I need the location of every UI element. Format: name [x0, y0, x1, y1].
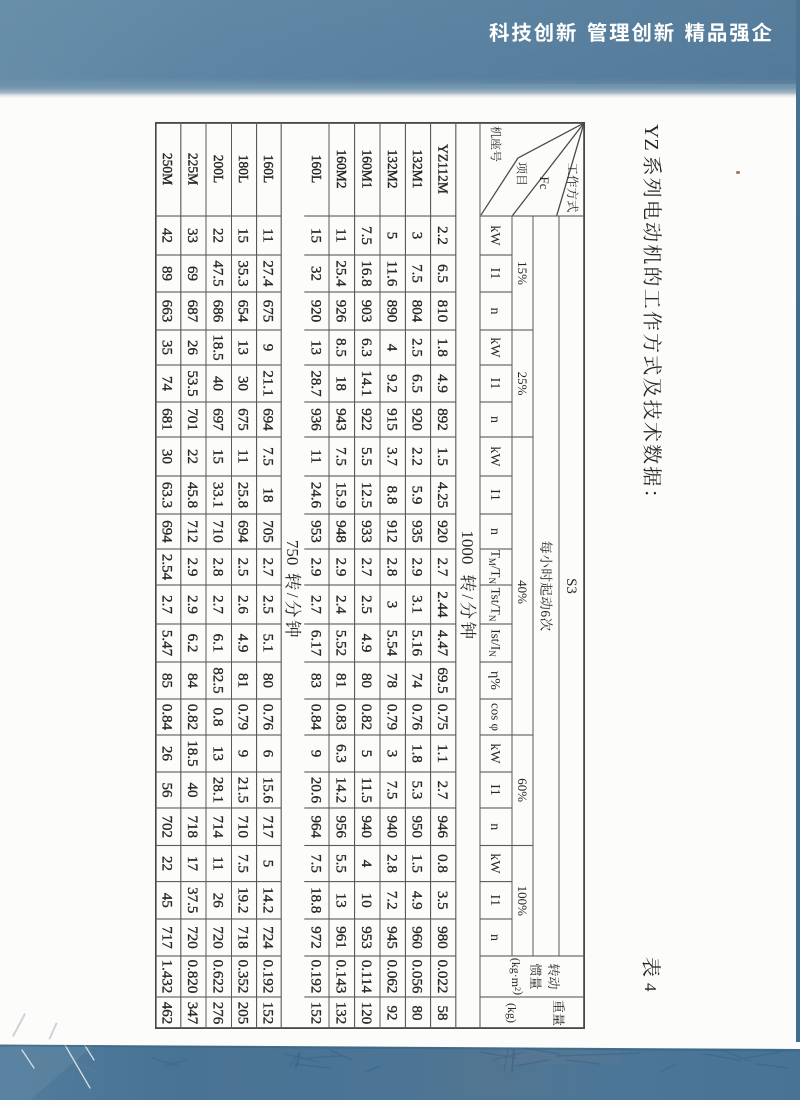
svg-text:0.84: 0.84 [159, 704, 175, 731]
svg-text:200L: 200L [211, 155, 226, 183]
svg-text:663: 663 [159, 300, 175, 322]
svg-text:0.76: 0.76 [409, 704, 425, 731]
svg-text:21.1: 21.1 [260, 370, 276, 396]
svg-text:5.47: 5.47 [159, 630, 175, 657]
svg-text:26: 26 [184, 340, 200, 355]
svg-text:18: 18 [333, 376, 349, 391]
svg-text:710: 710 [235, 816, 251, 838]
svg-text:2.6: 2.6 [235, 595, 251, 614]
svg-text:922: 922 [358, 408, 374, 430]
svg-text:4.47: 4.47 [434, 630, 450, 657]
svg-text:694: 694 [159, 520, 175, 543]
svg-text:15.6: 15.6 [260, 777, 276, 804]
svg-text:960: 960 [409, 926, 425, 948]
svg-text:kW: kW [487, 743, 502, 764]
svg-text:5.54: 5.54 [383, 630, 399, 657]
svg-text:27.4: 27.4 [260, 260, 276, 287]
svg-text:22: 22 [159, 856, 175, 871]
svg-text:152: 152 [307, 1002, 323, 1024]
svg-text:953: 953 [307, 520, 323, 542]
svg-text:30: 30 [235, 376, 251, 391]
svg-text:11: 11 [260, 228, 276, 242]
svg-text:276: 276 [209, 1002, 225, 1025]
svg-text:n: n [487, 308, 502, 315]
svg-text:712: 712 [184, 520, 200, 542]
svg-text:5: 5 [383, 232, 399, 240]
svg-text:675: 675 [235, 408, 251, 430]
svg-text:η%: η% [487, 671, 502, 690]
svg-text:964: 964 [307, 816, 323, 839]
svg-text:2.7: 2.7 [358, 558, 374, 577]
svg-text:n: n [487, 528, 502, 535]
svg-text:718: 718 [184, 816, 200, 838]
svg-text:1.8: 1.8 [434, 338, 450, 357]
svg-text:0.82: 0.82 [184, 704, 200, 730]
svg-text:15%: 15% [515, 261, 530, 285]
svg-text:24.6: 24.6 [307, 482, 323, 509]
svg-text:2.7: 2.7 [209, 595, 225, 614]
svg-text:4.25: 4.25 [434, 482, 450, 508]
svg-text:17: 17 [184, 856, 200, 871]
svg-text:5.16: 5.16 [409, 630, 425, 657]
svg-text:2.5: 2.5 [260, 595, 276, 614]
svg-text:Ist/IN: Ist/IN [487, 629, 503, 657]
svg-text:6.5: 6.5 [434, 264, 450, 283]
svg-text:42: 42 [159, 228, 175, 243]
svg-text:74: 74 [409, 673, 425, 688]
svg-text:(kg·m2): (kg·m2) [509, 958, 526, 995]
svg-text:37.5: 37.5 [184, 887, 200, 913]
svg-text:S3: S3 [563, 578, 579, 594]
svg-text:YZ112M: YZ112M [435, 144, 450, 194]
svg-text:2.5: 2.5 [409, 338, 425, 357]
svg-text:33.1: 33.1 [209, 482, 225, 508]
svg-text:15: 15 [235, 228, 251, 243]
svg-text:I1: I1 [487, 894, 502, 906]
svg-text:720: 720 [209, 926, 225, 948]
svg-text:7.5: 7.5 [333, 447, 349, 466]
svg-text:TM/TN: TM/TN [487, 550, 503, 584]
svg-text:714: 714 [209, 816, 225, 839]
svg-text:58: 58 [434, 1005, 450, 1020]
svg-text:132M2: 132M2 [385, 150, 400, 189]
svg-text:7.5: 7.5 [409, 264, 425, 283]
svg-text:11.5: 11.5 [358, 777, 374, 803]
svg-text:2.44: 2.44 [434, 591, 450, 618]
svg-text:53.5: 53.5 [184, 370, 200, 396]
svg-text:40: 40 [184, 783, 200, 798]
svg-text:18.8: 18.8 [307, 887, 323, 913]
svg-text:7.5: 7.5 [235, 854, 251, 873]
svg-text:/: / [283, 593, 302, 598]
svg-text:1.432: 1.432 [159, 960, 175, 994]
svg-text:4: 4 [358, 860, 374, 868]
svg-text:945: 945 [383, 926, 399, 948]
svg-text:0.76: 0.76 [260, 704, 276, 731]
svg-text:13: 13 [235, 340, 251, 355]
svg-text:2.9: 2.9 [307, 558, 323, 577]
svg-text:/: / [458, 594, 477, 599]
svg-text:0.062: 0.062 [383, 960, 399, 994]
svg-text:2.8: 2.8 [209, 558, 225, 577]
svg-text:462: 462 [159, 1002, 175, 1024]
svg-text:5.9: 5.9 [409, 486, 425, 505]
svg-text:25.8: 25.8 [235, 482, 251, 508]
svg-text:2.5: 2.5 [358, 595, 374, 614]
svg-text:972: 972 [307, 926, 323, 948]
svg-text:2.4: 2.4 [333, 595, 349, 614]
svg-text:2.2: 2.2 [409, 447, 425, 466]
svg-text:11: 11 [307, 449, 323, 463]
svg-text:9: 9 [235, 750, 251, 758]
svg-text:I1: I1 [487, 784, 502, 796]
svg-text:0.114: 0.114 [358, 960, 374, 994]
svg-text:720: 720 [184, 926, 200, 948]
svg-text:0.352: 0.352 [235, 960, 251, 994]
svg-text:11: 11 [235, 449, 251, 463]
svg-text:4.9: 4.9 [358, 634, 374, 653]
svg-text:6: 6 [260, 750, 276, 758]
svg-text:948: 948 [333, 520, 349, 542]
svg-text:4.9: 4.9 [409, 891, 425, 910]
svg-text:717: 717 [260, 816, 276, 839]
svg-text:160L: 160L [309, 155, 324, 183]
svg-text:15.9: 15.9 [333, 482, 349, 508]
svg-text:84: 84 [184, 673, 200, 688]
svg-text:694: 694 [260, 408, 276, 431]
svg-text:I1: I1 [487, 378, 502, 390]
svg-text:980: 980 [434, 926, 450, 948]
svg-text:3: 3 [409, 232, 425, 240]
svg-text:n: n [487, 416, 502, 423]
svg-text:(kg): (kg) [505, 1003, 519, 1023]
svg-text:7.5: 7.5 [358, 226, 374, 245]
svg-text:3.7: 3.7 [383, 447, 399, 466]
svg-text:654: 654 [235, 300, 251, 323]
svg-text:804: 804 [409, 300, 425, 323]
svg-text:2.7: 2.7 [434, 558, 450, 577]
svg-text:0.8: 0.8 [434, 854, 450, 873]
svg-text:25%: 25% [515, 372, 530, 396]
svg-text:92: 92 [383, 1005, 399, 1020]
svg-text:7.5: 7.5 [260, 447, 276, 466]
svg-text:810: 810 [434, 300, 450, 322]
svg-text:225M: 225M [186, 153, 201, 185]
svg-text:5.5: 5.5 [358, 447, 374, 466]
svg-text:933: 933 [358, 520, 374, 542]
svg-text:2.9: 2.9 [184, 595, 200, 614]
svg-text:4.9: 4.9 [235, 634, 251, 653]
svg-text:Tst/TN: Tst/TN [487, 588, 503, 622]
svg-text:20.6: 20.6 [307, 777, 323, 804]
svg-text:920: 920 [307, 300, 323, 322]
svg-text:35.3: 35.3 [235, 260, 251, 286]
svg-text:920: 920 [434, 520, 450, 542]
svg-text:kW: kW [487, 853, 502, 874]
svg-text:I1: I1 [487, 268, 502, 280]
svg-text:cos φ: cos φ [489, 703, 504, 731]
svg-text:160M2: 160M2 [334, 150, 349, 189]
svg-text:701: 701 [184, 408, 200, 430]
svg-text:0.82: 0.82 [358, 704, 374, 730]
svg-text:0.192: 0.192 [260, 960, 276, 994]
svg-text:9: 9 [307, 750, 323, 758]
svg-text:n: n [487, 934, 502, 941]
svg-text:22: 22 [184, 449, 200, 464]
svg-text:892: 892 [434, 408, 450, 430]
svg-text:1.8: 1.8 [409, 744, 425, 763]
svg-text:0.84: 0.84 [307, 704, 323, 731]
svg-text:YZ: YZ [640, 124, 662, 151]
svg-text:0.79: 0.79 [235, 704, 251, 730]
svg-text:710: 710 [209, 520, 225, 542]
svg-text:705: 705 [260, 520, 276, 542]
svg-text:2.7: 2.7 [434, 781, 450, 800]
svg-text:I1: I1 [487, 489, 502, 501]
svg-text:250M: 250M [160, 153, 175, 185]
svg-text:80: 80 [358, 673, 374, 688]
svg-text:14.2: 14.2 [260, 887, 276, 913]
svg-text:940: 940 [358, 816, 374, 838]
svg-text:40: 40 [209, 376, 225, 391]
svg-text:943: 943 [333, 408, 349, 430]
svg-text:2.5: 2.5 [235, 558, 251, 577]
svg-text:935: 935 [409, 520, 425, 542]
svg-text:0.192: 0.192 [307, 960, 323, 994]
svg-text:0.75: 0.75 [434, 704, 450, 730]
svg-text:1.1: 1.1 [434, 744, 450, 763]
svg-text:28.7: 28.7 [307, 370, 323, 397]
svg-text:2.54: 2.54 [159, 554, 175, 581]
svg-text:4: 4 [383, 344, 399, 352]
svg-text:26: 26 [159, 746, 175, 761]
svg-text:11.6: 11.6 [383, 261, 399, 287]
svg-text:5: 5 [260, 860, 276, 868]
svg-text:5.3: 5.3 [409, 781, 425, 800]
svg-text:6: 6 [538, 610, 553, 617]
svg-text:6.3: 6.3 [333, 744, 349, 763]
svg-text:19.2: 19.2 [235, 887, 251, 913]
svg-text:347: 347 [184, 1002, 200, 1025]
svg-text:702: 702 [159, 816, 175, 838]
svg-text:718: 718 [235, 926, 251, 948]
svg-text:5.52: 5.52 [333, 630, 349, 656]
svg-text:2.9: 2.9 [184, 558, 200, 577]
svg-text:6.17: 6.17 [307, 630, 323, 657]
svg-text:2.7: 2.7 [159, 595, 175, 614]
svg-text:1.5: 1.5 [434, 447, 450, 466]
svg-text:5: 5 [358, 750, 374, 758]
svg-text:45.8: 45.8 [184, 482, 200, 508]
svg-text:33: 33 [184, 228, 200, 243]
svg-text:6.2: 6.2 [184, 634, 200, 653]
svg-text:85: 85 [159, 673, 175, 688]
svg-text:0.622: 0.622 [209, 960, 225, 994]
svg-text:7.2: 7.2 [383, 891, 399, 910]
svg-text:953: 953 [358, 926, 374, 948]
svg-text:81: 81 [235, 673, 251, 688]
svg-text:69: 69 [184, 266, 200, 281]
svg-text:2.2: 2.2 [434, 226, 450, 245]
svg-text:63.3: 63.3 [159, 482, 175, 508]
svg-text:940: 940 [383, 816, 399, 838]
svg-text:160L: 160L [261, 155, 276, 183]
svg-text:1.5: 1.5 [409, 854, 425, 873]
svg-text:60%: 60% [515, 778, 530, 802]
svg-text:11: 11 [333, 228, 349, 242]
svg-text:160M1: 160M1 [360, 150, 375, 189]
svg-text:18.5: 18.5 [184, 740, 200, 766]
svg-text:3.1: 3.1 [409, 595, 425, 614]
svg-text:78: 78 [383, 673, 399, 688]
svg-text:890: 890 [383, 300, 399, 322]
svg-text:6.1: 6.1 [209, 634, 225, 653]
svg-text:7.5: 7.5 [307, 854, 323, 873]
svg-text:16.8: 16.8 [358, 260, 374, 286]
svg-text:132: 132 [333, 1002, 349, 1024]
svg-text:15: 15 [307, 228, 323, 243]
svg-text:14.1: 14.1 [358, 370, 374, 396]
svg-text:9: 9 [260, 344, 276, 351]
svg-text:45: 45 [159, 893, 175, 908]
svg-text:7.5: 7.5 [383, 781, 399, 800]
svg-text:9.2: 9.2 [383, 374, 399, 393]
svg-text:100%: 100% [515, 886, 530, 916]
svg-text:3: 3 [383, 750, 399, 758]
svg-text:kW: kW [487, 446, 502, 467]
svg-text:2.9: 2.9 [409, 558, 425, 577]
svg-text:950: 950 [409, 816, 425, 838]
svg-text:6.3: 6.3 [358, 338, 374, 357]
svg-text:4: 4 [641, 983, 660, 992]
svg-text:132M1: 132M1 [410, 150, 425, 189]
svg-text:687: 687 [184, 300, 200, 323]
svg-text:6.5: 6.5 [409, 374, 425, 393]
svg-text:1000: 1000 [458, 530, 477, 564]
svg-text:22: 22 [209, 228, 225, 243]
svg-text:750: 750 [283, 540, 302, 565]
svg-text:69.5: 69.5 [434, 667, 450, 693]
svg-text:89: 89 [159, 266, 175, 281]
svg-text:80: 80 [409, 1005, 425, 1020]
svg-text:74: 74 [159, 376, 175, 391]
svg-text:83: 83 [307, 673, 323, 688]
svg-text:10: 10 [358, 893, 374, 908]
svg-text:717: 717 [159, 926, 175, 949]
svg-text:11: 11 [209, 856, 225, 870]
svg-text:152: 152 [260, 1002, 276, 1024]
svg-text:Fc: Fc [537, 177, 552, 190]
svg-text:915: 915 [383, 408, 399, 430]
svg-text:0.79: 0.79 [383, 704, 399, 730]
svg-text:18.5: 18.5 [209, 334, 225, 360]
svg-text:120: 120 [358, 1002, 374, 1024]
svg-text:18: 18 [260, 488, 276, 503]
svg-text:40%: 40% [515, 580, 530, 604]
svg-text:920: 920 [409, 408, 425, 430]
svg-text:26: 26 [209, 893, 225, 908]
svg-text:32: 32 [307, 266, 323, 281]
svg-text:0.022: 0.022 [434, 960, 450, 994]
svg-text:912: 912 [383, 520, 399, 542]
svg-text:3.5: 3.5 [434, 891, 450, 910]
svg-text:697: 697 [209, 408, 225, 431]
svg-text:2.8: 2.8 [383, 558, 399, 577]
svg-text:28.1: 28.1 [209, 777, 225, 803]
svg-text:936: 936 [307, 408, 323, 431]
svg-text:926: 926 [333, 300, 349, 323]
svg-text:8.8: 8.8 [383, 486, 399, 505]
svg-text:8.5: 8.5 [333, 338, 349, 357]
svg-text:13: 13 [333, 893, 349, 908]
svg-text:82.5: 82.5 [209, 667, 225, 693]
svg-text:675: 675 [260, 300, 276, 322]
svg-text:681: 681 [159, 408, 175, 430]
svg-text:12.5: 12.5 [358, 482, 374, 508]
svg-text:724: 724 [260, 926, 276, 949]
svg-text:25.4: 25.4 [333, 260, 349, 287]
svg-text:205: 205 [235, 1002, 251, 1024]
svg-text:0.83: 0.83 [333, 704, 349, 730]
svg-text:0.143: 0.143 [333, 960, 349, 994]
svg-text:13: 13 [307, 340, 323, 355]
svg-text:21.5: 21.5 [235, 777, 251, 803]
svg-text:5.1: 5.1 [260, 634, 276, 653]
svg-text:2.7: 2.7 [260, 558, 276, 577]
svg-text:0.8: 0.8 [209, 708, 225, 727]
svg-text:4.9: 4.9 [434, 374, 450, 393]
svg-text:56: 56 [159, 783, 175, 798]
svg-text:n: n [487, 823, 502, 830]
svg-text:3: 3 [383, 601, 399, 609]
svg-text:0.056: 0.056 [409, 960, 425, 994]
svg-text:47.5: 47.5 [209, 260, 225, 286]
svg-text:2.7: 2.7 [307, 595, 323, 614]
svg-text:35: 35 [159, 340, 175, 355]
svg-text:686: 686 [209, 300, 225, 323]
svg-text:694: 694 [235, 520, 251, 543]
svg-text:80: 80 [260, 673, 276, 688]
svg-text:946: 946 [434, 816, 450, 839]
svg-text:956: 956 [333, 816, 349, 839]
svg-text:15: 15 [209, 449, 225, 464]
svg-text:5.5: 5.5 [333, 854, 349, 873]
svg-text:kW: kW [487, 337, 502, 358]
svg-text:30: 30 [159, 449, 175, 464]
svg-text:180L: 180L [236, 155, 251, 183]
svg-text:2.8: 2.8 [383, 854, 399, 873]
svg-text:2.9: 2.9 [333, 558, 349, 577]
svg-text:13: 13 [209, 746, 225, 761]
svg-text:903: 903 [358, 300, 374, 322]
svg-text:14.2: 14.2 [333, 777, 349, 803]
svg-text:0.820: 0.820 [184, 960, 200, 994]
svg-text:961: 961 [333, 926, 349, 948]
svg-text:81: 81 [333, 673, 349, 688]
svg-text:kW: kW [487, 225, 502, 246]
